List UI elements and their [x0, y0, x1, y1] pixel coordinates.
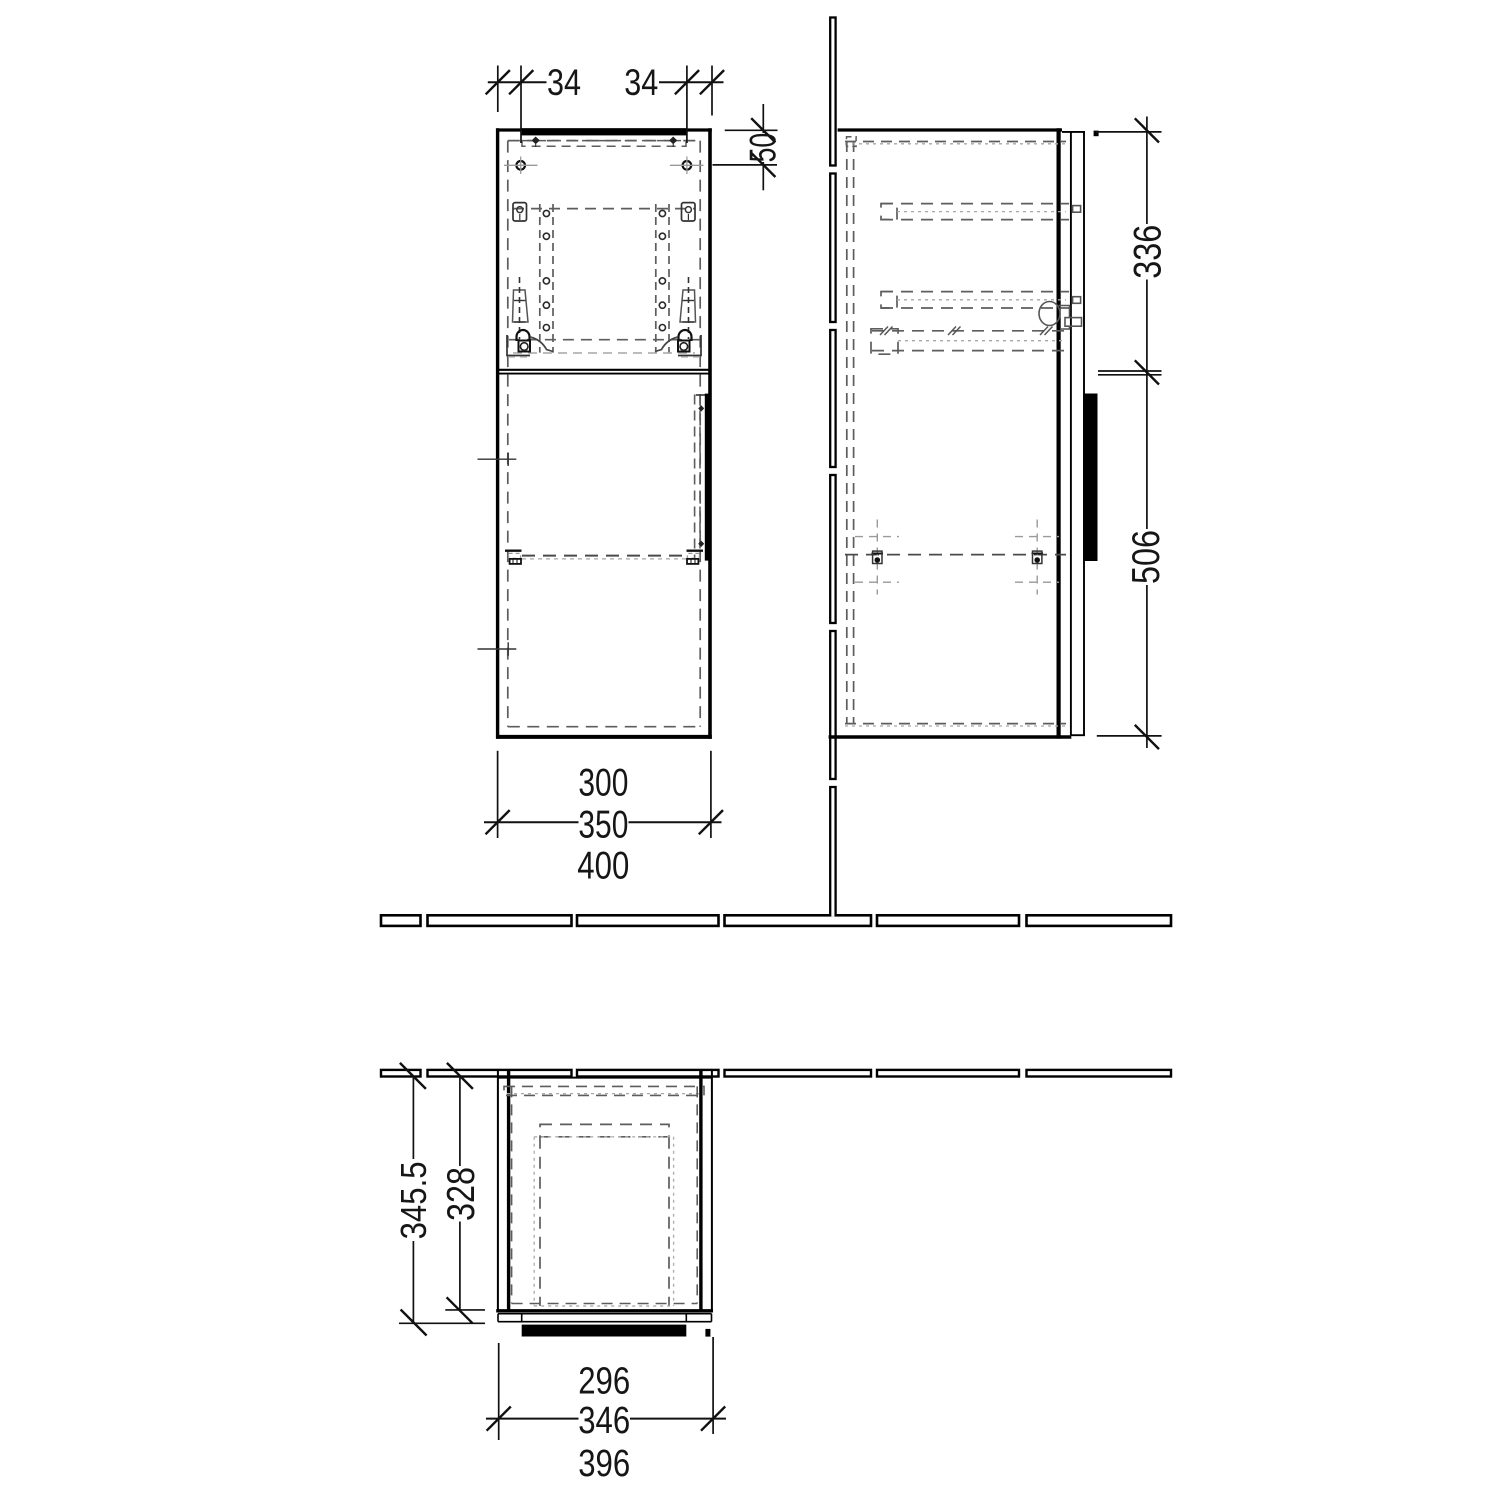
- svg-text:400: 400: [577, 844, 629, 887]
- svg-text:328: 328: [440, 1167, 483, 1221]
- svg-text:346: 346: [578, 1400, 630, 1442]
- svg-text:34: 34: [547, 62, 581, 103]
- svg-text:336: 336: [1126, 225, 1169, 279]
- svg-text:350: 350: [578, 803, 628, 846]
- svg-text:300: 300: [578, 762, 628, 805]
- svg-text:396: 396: [578, 1443, 630, 1485]
- svg-text:345.5: 345.5: [393, 1161, 434, 1239]
- svg-text:50: 50: [743, 133, 784, 163]
- svg-text:34: 34: [624, 62, 658, 103]
- svg-text:296: 296: [578, 1361, 630, 1403]
- svg-text:506: 506: [1125, 530, 1168, 584]
